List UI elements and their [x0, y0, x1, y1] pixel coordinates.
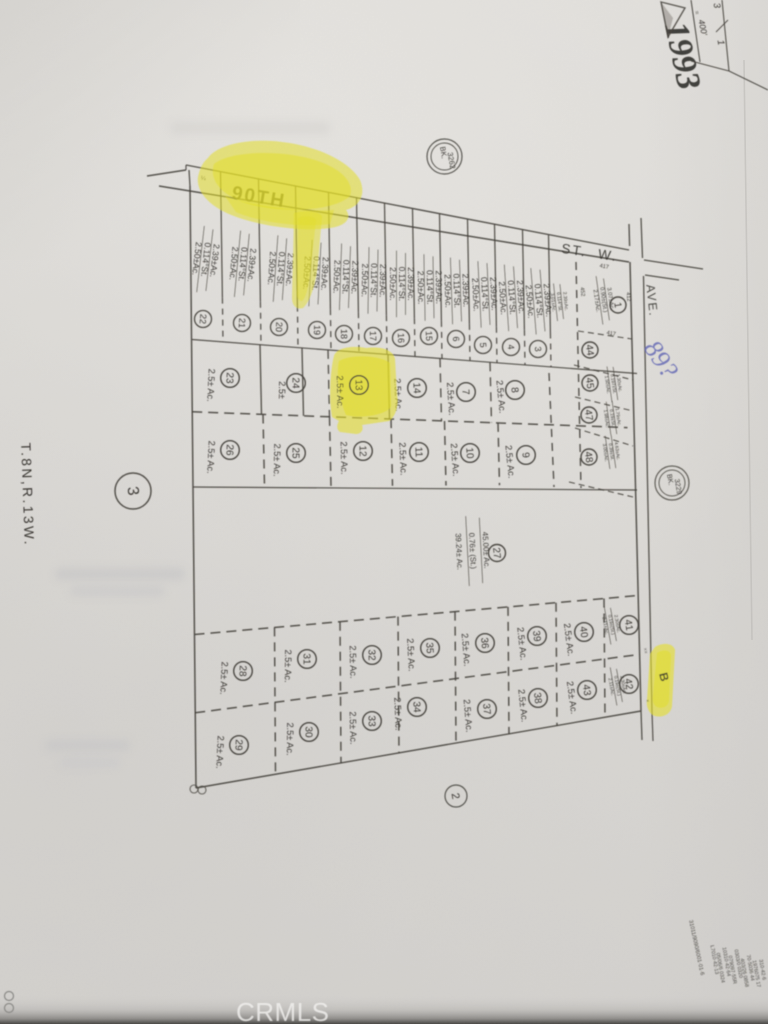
svg-text:2.5± Ac.: 2.5± Ac.	[218, 661, 229, 695]
svg-text:45.00± Ac.: 45.00± Ac.	[481, 532, 492, 569]
svg-text:452: 452	[579, 287, 586, 297]
svg-text:39.24± Ac.: 39.24± Ac.	[454, 533, 465, 570]
svg-text:31: 31	[301, 653, 312, 665]
svg-text:3: 3	[533, 346, 543, 352]
svg-text:6: 6	[451, 336, 461, 342]
svg-text:26: 26	[223, 444, 235, 456]
svg-text:44: 44	[583, 344, 595, 357]
svg-text:41: 41	[622, 619, 635, 632]
svg-text:2.5± Ac.: 2.5± Ac.	[283, 649, 293, 682]
svg-text:2.5± Ac.: 2.5± Ac.	[348, 711, 359, 744]
svg-text:2.39±Ac.: 2.39±Ac.	[378, 264, 389, 298]
svg-text:47: 47	[582, 409, 594, 422]
svg-text:33: 33	[365, 715, 376, 727]
svg-text:2.5± Ac.: 2.5± Ac.	[392, 697, 403, 731]
svg-text:25: 25	[290, 447, 301, 459]
svg-text:11: 11	[412, 447, 423, 458]
svg-text:4: 4	[506, 344, 516, 350]
svg-text:37: 37	[480, 703, 492, 715]
svg-text:19: 19	[312, 325, 322, 335]
svg-text:2.5±: 2.5±	[277, 381, 287, 399]
svg-text:2.39±Ac.: 2.39±Ac.	[406, 267, 416, 301]
svg-text:2.5± Ac.: 2.5± Ac.	[214, 735, 225, 769]
svg-text:××: ××	[642, 647, 649, 654]
svg-text:2.5± Ac.: 2.5± Ac.	[348, 645, 359, 678]
svg-text:2.5± Ac.: 2.5± Ac.	[285, 722, 295, 755]
svg-text:0.76± (St.): 0.76± (St.)	[467, 532, 478, 569]
svg-text:18: 18	[339, 329, 349, 339]
svg-text:2.5± Ac.: 2.5± Ac.	[205, 440, 217, 474]
svg-text:17: 17	[368, 331, 378, 341]
svg-text:27: 27	[490, 547, 502, 559]
svg-text:5: 5	[478, 342, 488, 348]
svg-text:15: 15	[424, 331, 434, 341]
svg-text:34: 34	[410, 701, 422, 713]
svg-text:2.39±Ac.: 2.39±Ac.	[349, 260, 360, 294]
svg-text:2.5± Ac.: 2.5± Ac.	[205, 368, 217, 402]
svg-text:28: 28	[236, 665, 247, 677]
svg-text:16: 16	[396, 333, 406, 343]
svg-text:CRMLS: CRMLS	[236, 997, 330, 1024]
svg-text:12: 12	[356, 445, 367, 457]
svg-text:43: 43	[580, 684, 592, 697]
svg-text:36: 36	[478, 637, 490, 649]
svg-text:39: 39	[530, 630, 542, 643]
svg-text:29: 29	[232, 739, 244, 751]
svg-text:10: 10	[463, 447, 475, 459]
svg-text:40: 40	[577, 626, 589, 639]
svg-text:30: 30	[303, 726, 314, 738]
svg-text:412: 412	[625, 292, 632, 302]
svg-text:35: 35	[423, 642, 435, 654]
svg-text:2.5± Ac.: 2.5± Ac.	[397, 442, 409, 476]
svg-text:20: 20	[274, 322, 284, 332]
svg-text:48: 48	[582, 451, 594, 464]
svg-text:2.5± Ac.: 2.5± Ac.	[339, 441, 350, 474]
svg-text:2.5± Ac.: 2.5± Ac.	[335, 375, 346, 408]
svg-text:2.5± Ac.: 2.5± Ac.	[272, 443, 283, 476]
svg-text:24: 24	[290, 377, 301, 389]
svg-text:22: 22	[198, 314, 209, 325]
svg-text:21: 21	[237, 318, 248, 329]
svg-text:32: 32	[365, 649, 376, 661]
svg-text:14: 14	[410, 382, 422, 394]
svg-text:23: 23	[223, 372, 235, 384]
svg-text:38: 38	[531, 692, 543, 705]
svg-text:13: 13	[353, 379, 364, 391]
svg-text:2.39±Ac.: 2.39±Ac.	[319, 257, 331, 291]
svg-text:2.39±Ac.: 2.39±Ac.	[460, 273, 471, 307]
svg-text:45: 45	[583, 377, 595, 390]
svg-text:2.5± Ac.: 2.5± Ac.	[405, 638, 417, 672]
